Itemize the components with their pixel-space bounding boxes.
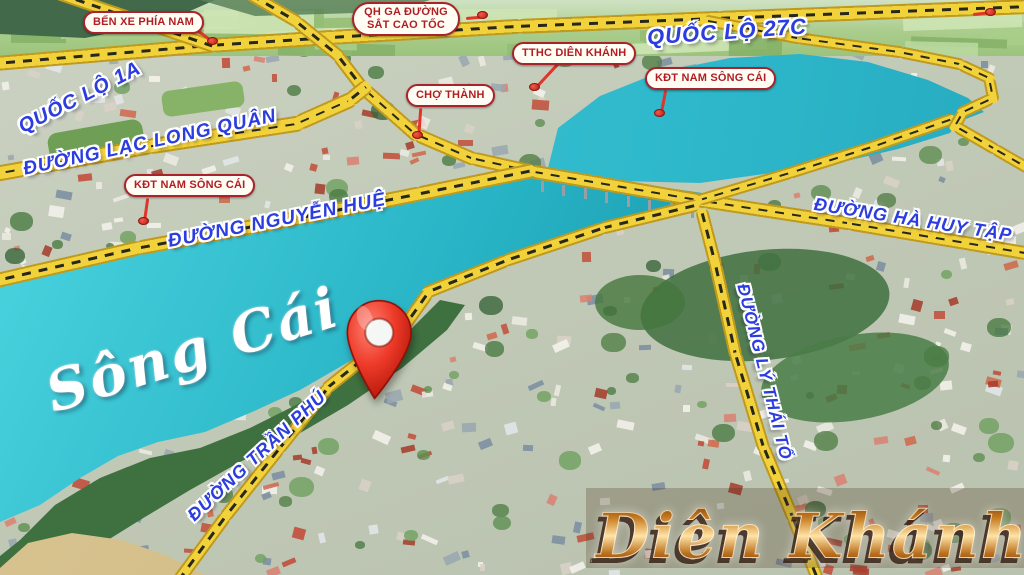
building xyxy=(41,245,52,258)
building xyxy=(4,227,11,233)
building xyxy=(114,217,123,222)
building xyxy=(383,152,400,159)
building xyxy=(27,70,40,79)
callout-cho-thanh: CHỢ THÀNH xyxy=(406,84,495,107)
building xyxy=(409,158,419,166)
building xyxy=(292,527,306,540)
pointer-dot xyxy=(477,11,488,19)
tree xyxy=(987,318,1011,338)
building xyxy=(318,533,326,544)
building xyxy=(448,473,465,484)
tree xyxy=(417,450,430,460)
tree xyxy=(493,516,511,531)
building xyxy=(243,65,251,71)
tree xyxy=(712,424,735,442)
building xyxy=(910,299,923,312)
building xyxy=(593,403,606,412)
building xyxy=(346,157,358,166)
tree-grove xyxy=(595,275,685,330)
building xyxy=(300,458,311,465)
tree xyxy=(355,541,365,549)
building xyxy=(1016,370,1024,379)
building xyxy=(938,176,945,183)
tree xyxy=(814,431,839,451)
tree xyxy=(973,453,985,462)
building xyxy=(943,328,956,337)
building xyxy=(551,398,557,407)
building xyxy=(743,470,752,481)
tree xyxy=(979,418,999,434)
tree xyxy=(10,212,34,231)
tree xyxy=(404,530,418,541)
building xyxy=(501,323,510,335)
callout-kdt-nam-song-cai-west: KĐT NAM SÔNG CÁI xyxy=(124,174,255,197)
callout-ben-xe-phia-nam: BẾN XE PHÍA NAM xyxy=(83,11,204,34)
building xyxy=(960,342,971,352)
building xyxy=(313,465,324,476)
building xyxy=(119,109,136,118)
pointer-dot xyxy=(138,217,149,225)
building xyxy=(683,405,691,412)
building xyxy=(261,492,271,501)
building xyxy=(945,161,953,172)
tree xyxy=(646,260,661,272)
building xyxy=(993,371,1001,377)
building xyxy=(675,384,683,393)
building xyxy=(464,123,475,133)
tree xyxy=(601,333,625,352)
tree xyxy=(485,341,504,357)
building xyxy=(951,423,966,435)
building xyxy=(934,311,945,319)
building xyxy=(940,381,953,391)
tree xyxy=(479,296,503,315)
building xyxy=(552,339,570,353)
tree xyxy=(919,146,942,164)
building xyxy=(358,478,371,491)
bridge-pylon xyxy=(562,185,565,196)
bridge-pylon xyxy=(541,181,544,192)
tree xyxy=(941,270,953,279)
building xyxy=(462,550,470,558)
tree xyxy=(449,371,459,379)
building xyxy=(724,414,736,422)
building xyxy=(1008,461,1020,472)
building xyxy=(580,294,593,302)
building xyxy=(546,493,558,505)
building xyxy=(412,150,427,157)
building xyxy=(449,357,456,363)
building xyxy=(400,149,410,157)
building xyxy=(264,201,271,209)
building xyxy=(101,222,112,230)
tree xyxy=(52,240,63,249)
building xyxy=(866,254,875,261)
building xyxy=(486,331,498,340)
map-stage: BẾN XE PHÍA NAM QH GA ĐƯỜNG SẮT CAO TỐC … xyxy=(0,0,1024,575)
building xyxy=(478,438,493,450)
building xyxy=(223,156,240,166)
building xyxy=(1003,260,1019,270)
building xyxy=(892,157,906,162)
building xyxy=(222,58,231,68)
callout-qh-ga-duong-sat: QH GA ĐƯỜNG SẮT CAO TỐC xyxy=(352,2,460,36)
building xyxy=(266,566,281,575)
tree xyxy=(18,523,30,532)
pointer-dot xyxy=(529,83,540,91)
building xyxy=(266,55,280,63)
building xyxy=(834,473,848,486)
building xyxy=(874,436,889,445)
tree xyxy=(697,401,707,409)
building xyxy=(271,471,285,481)
building xyxy=(281,558,295,568)
tree xyxy=(537,391,551,402)
building xyxy=(981,61,988,68)
building xyxy=(408,433,417,440)
building xyxy=(852,187,862,199)
building xyxy=(587,443,601,455)
building xyxy=(531,99,548,110)
road-dash-line xyxy=(351,86,367,99)
building xyxy=(272,74,278,82)
building xyxy=(163,153,180,166)
building xyxy=(698,441,705,447)
building xyxy=(149,76,160,82)
building xyxy=(421,534,439,546)
building xyxy=(462,423,476,433)
building xyxy=(552,535,566,545)
tree xyxy=(559,451,582,469)
building xyxy=(616,419,634,430)
tree xyxy=(607,387,617,395)
building xyxy=(55,190,72,201)
pointer-dot xyxy=(207,37,218,45)
tree xyxy=(626,373,638,383)
building xyxy=(504,421,518,434)
bridge-pylon xyxy=(627,196,630,207)
tree xyxy=(289,477,314,497)
pointer-dot xyxy=(654,109,665,117)
building xyxy=(78,173,93,182)
building xyxy=(943,454,951,461)
building xyxy=(372,430,391,445)
building xyxy=(441,421,455,432)
building xyxy=(321,148,328,155)
building xyxy=(925,466,939,475)
building xyxy=(284,163,294,172)
building xyxy=(253,56,265,63)
building xyxy=(48,205,64,218)
pointer-dot xyxy=(985,8,996,16)
building xyxy=(573,522,583,534)
building xyxy=(354,121,363,131)
building xyxy=(400,445,415,454)
pointer-dot xyxy=(412,131,423,139)
callout-tthc-dien-khanh: TTHC DIÊN KHÁNH xyxy=(512,42,636,65)
building xyxy=(903,277,910,288)
building xyxy=(569,561,586,573)
building xyxy=(114,94,125,105)
building xyxy=(2,81,11,90)
building xyxy=(639,345,651,350)
building xyxy=(554,385,562,397)
callout-kdt-nam-song-cai-east: KĐT NAM SÔNG CÁI xyxy=(645,67,776,90)
building xyxy=(314,183,325,194)
building xyxy=(113,194,129,203)
building xyxy=(1013,222,1024,235)
building xyxy=(478,55,487,67)
building xyxy=(512,317,527,327)
building xyxy=(594,388,608,400)
tree xyxy=(535,119,545,127)
building xyxy=(405,141,415,150)
building xyxy=(898,314,915,326)
tree xyxy=(287,85,302,97)
building xyxy=(702,459,709,470)
building xyxy=(491,144,508,155)
building xyxy=(7,154,14,161)
building xyxy=(959,257,968,269)
building xyxy=(527,379,544,390)
tree xyxy=(5,248,25,264)
building xyxy=(610,402,620,409)
city-watermark: Diên Khánh xyxy=(596,500,1024,573)
tree xyxy=(988,433,1014,454)
building xyxy=(60,232,72,242)
building xyxy=(323,155,330,160)
building xyxy=(442,551,460,566)
building xyxy=(987,380,998,387)
building xyxy=(96,181,102,188)
building xyxy=(905,436,917,447)
building xyxy=(1005,298,1014,305)
building xyxy=(948,297,959,306)
building xyxy=(465,313,473,321)
tree xyxy=(526,329,538,338)
building xyxy=(582,252,591,262)
location-pin[interactable] xyxy=(337,296,418,405)
building xyxy=(147,223,161,228)
building xyxy=(312,446,318,454)
tree xyxy=(368,66,384,79)
building xyxy=(480,564,486,571)
building xyxy=(682,365,692,370)
tree xyxy=(318,438,339,455)
building xyxy=(2,233,11,240)
building xyxy=(523,445,533,451)
building xyxy=(138,448,152,455)
bridge-pylon xyxy=(605,192,608,203)
building xyxy=(368,524,378,534)
building xyxy=(883,175,900,188)
building xyxy=(794,193,801,200)
building xyxy=(443,383,453,392)
building xyxy=(876,261,886,272)
tree xyxy=(931,421,942,430)
bridge-pylon xyxy=(584,188,587,199)
tree xyxy=(279,496,292,506)
building xyxy=(309,163,318,172)
